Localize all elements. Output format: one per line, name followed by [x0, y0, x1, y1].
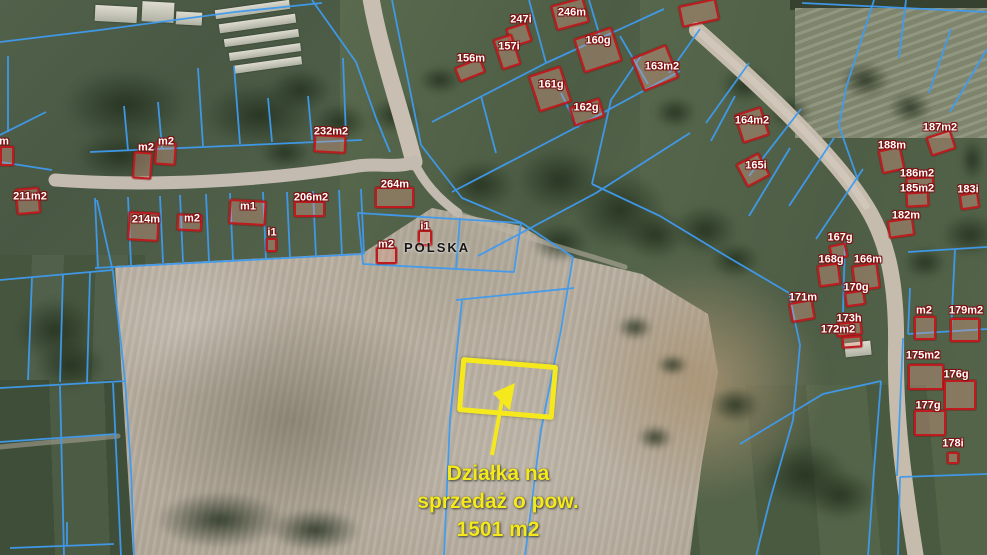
sale-annotation-line3: 1501 m2	[370, 516, 626, 544]
sale-annotation: Działka na sprzedaż o pow. 1501 m2	[370, 460, 626, 544]
sale-annotation-line2: sprzedaż o pow.	[370, 488, 626, 516]
aerial-cadastral-map: 247i246m156m157i160g161g162g163m2164m216…	[0, 0, 987, 555]
sale-annotation-line1: Działka na	[370, 460, 626, 488]
